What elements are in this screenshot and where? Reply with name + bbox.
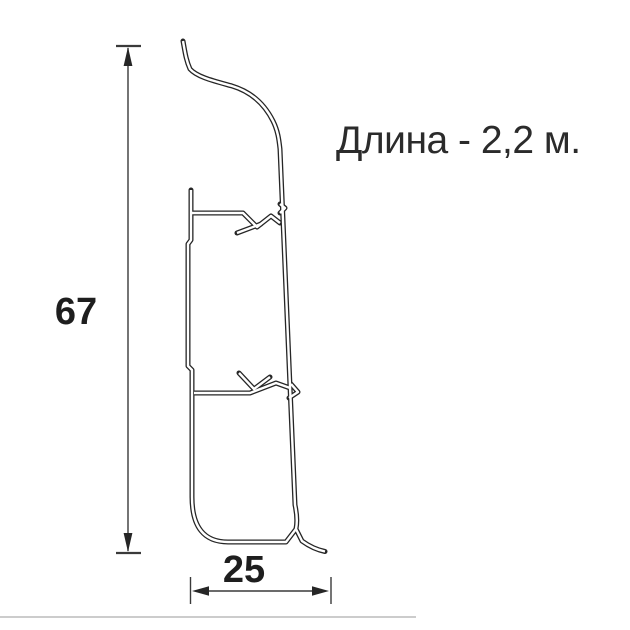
profile-wall-core xyxy=(183,41,325,552)
profile-back-wall-and-base xyxy=(188,190,296,542)
length-annotation: Длина - 2,2 м. xyxy=(336,119,581,162)
profile-front-wall-core xyxy=(183,41,325,552)
width-dimension-value: 25 xyxy=(223,549,265,591)
arrow-down-icon xyxy=(124,533,133,552)
height-dimension-line xyxy=(116,46,141,553)
height-dimension-value: 67 xyxy=(55,291,97,333)
arrow-right-icon xyxy=(312,586,329,596)
profile-lower-shelf xyxy=(194,383,290,393)
technical-drawing-page: 67 25 Длина - 2,2 м. xyxy=(0,0,630,630)
profile-outline xyxy=(183,41,325,552)
profile-front-wall xyxy=(183,41,325,552)
arrow-left-icon xyxy=(192,586,209,596)
profile-back-wall-core xyxy=(188,190,296,542)
plinth-profile-drawing: 67 25 Длина - 2,2 м. xyxy=(0,0,630,630)
arrow-up-icon xyxy=(124,47,133,66)
